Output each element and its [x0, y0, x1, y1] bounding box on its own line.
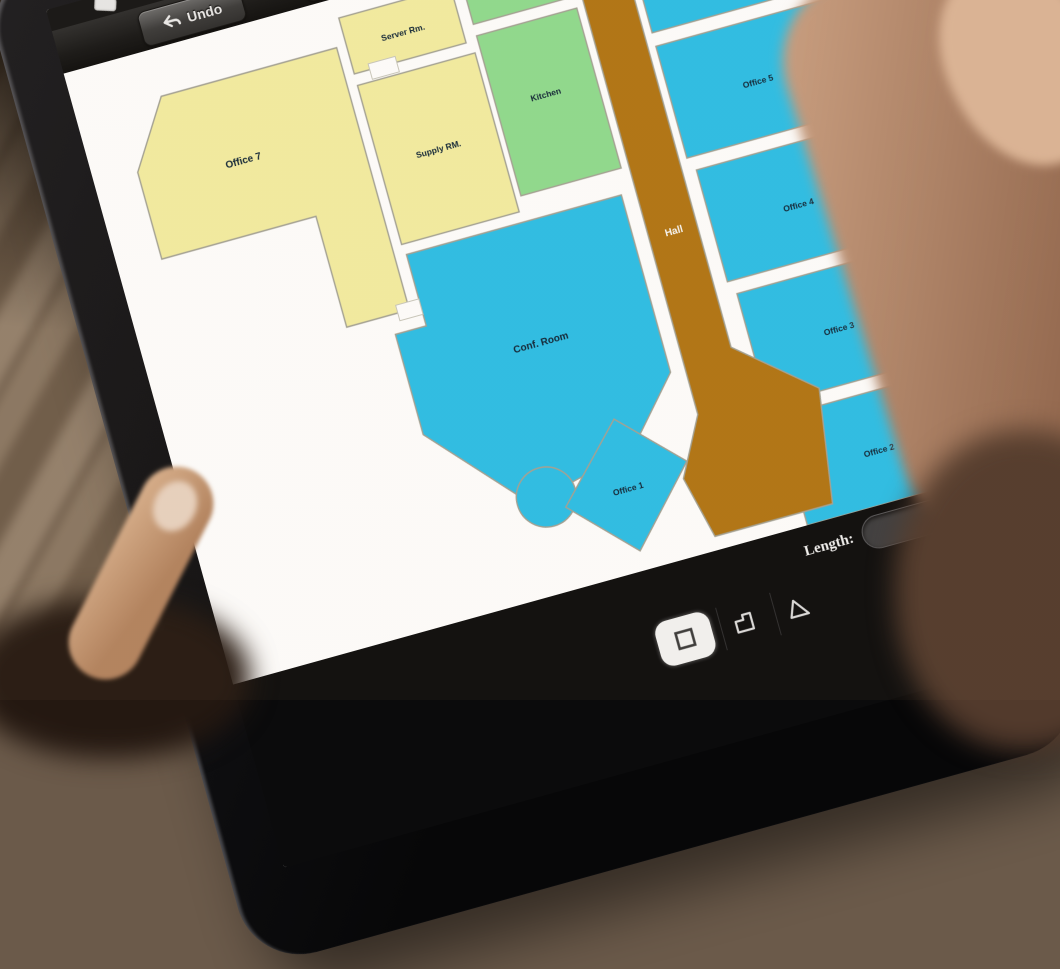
- left-thumb-nail: [145, 473, 206, 538]
- rectangle-tool-icon: [671, 624, 701, 654]
- length-label: Length:: [802, 530, 856, 560]
- polygon-tool-icon: [729, 608, 759, 638]
- shape-tools-group: [652, 579, 826, 668]
- triangle-tool-button[interactable]: [769, 580, 826, 635]
- triangle-tool-icon: [783, 593, 813, 623]
- undo-button-label: Undo: [185, 0, 224, 25]
- partial-toolbar-icon: [94, 0, 117, 11]
- rectangle-tool-button[interactable]: [652, 609, 718, 668]
- undo-arrow-icon: [160, 11, 184, 32]
- polygon-tool-button[interactable]: [715, 595, 772, 650]
